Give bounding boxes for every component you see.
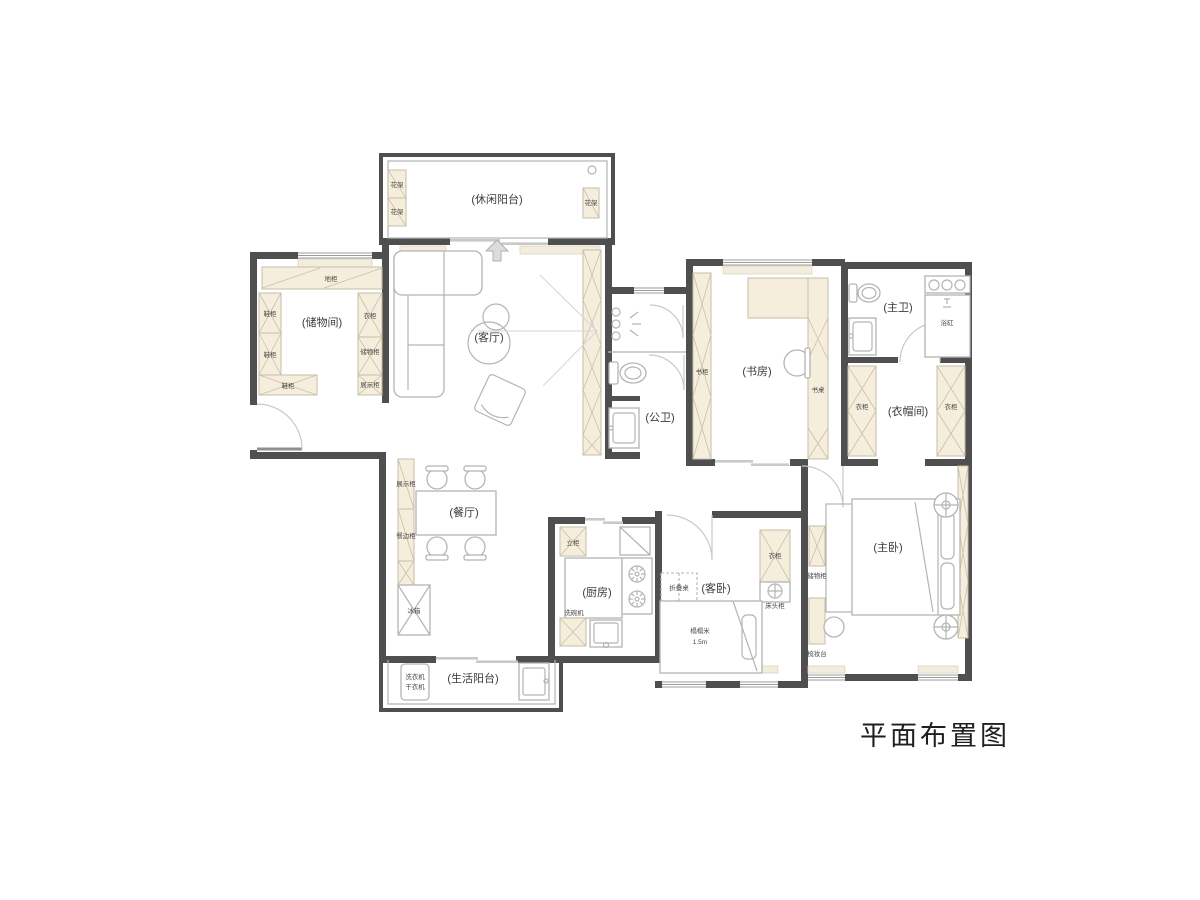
nightstand-label: 床头柜: [765, 601, 785, 610]
room-guest-bedroom: 折叠桌 衣柜 床头柜 榻榻米 1.5m (客卧): [660, 530, 790, 673]
tatami-label: 榻榻米: [690, 626, 710, 635]
room-label-storage: (储物间): [302, 315, 342, 329]
dresser-label: 梳妆台: [807, 649, 827, 658]
room-label-study: (书房): [742, 365, 771, 378]
bedside-lamp-icon: [934, 615, 958, 639]
floor-plan: 花架 花架 花架 (休闲阳台) 地柜 鞋柜 鞋柜 鞋柜 衣柜 储物柜 展示柜 (…: [0, 0, 1200, 900]
desk-label: 书桌: [812, 385, 826, 394]
display-cabinet-label: 展示柜: [396, 479, 416, 488]
room-service-balcony: 洗衣机 干衣机 (生活阳台): [401, 663, 549, 700]
room-public-bathroom: (公卫): [608, 308, 686, 448]
bookshelf-label: 书柜: [696, 367, 710, 376]
shoe-cabinet-label: 鞋柜: [264, 309, 278, 318]
room-storage: 地柜 鞋柜 鞋柜 鞋柜 衣柜 储物柜 展示柜 (储物间): [259, 267, 382, 395]
folding-table-label: 折叠桌: [669, 583, 689, 592]
flower-rack-label: 花架: [391, 180, 405, 189]
washer-label: 洗衣机: [405, 672, 425, 681]
room-master-bedroom: 储物柜 梳妆台 (主卧): [807, 466, 968, 658]
flower-rack-label: 花架: [391, 207, 405, 216]
plan-title: 平面布置图: [860, 721, 1010, 751]
room-kitchen: 立柜 洗碗机 (厨房): [560, 527, 652, 648]
dishwasher-label: 洗碗机: [564, 608, 584, 617]
room-dining: 展示柜 餐边柜 冰箱 (餐厅): [396, 459, 496, 635]
room-living: (客厅): [394, 250, 601, 455]
fridge-label: 冰箱: [408, 606, 422, 615]
storage-cabinet-label: 储物柜: [807, 571, 827, 580]
sideboard-label: 餐边柜: [396, 531, 416, 540]
wardrobe-label: 衣柜: [364, 311, 378, 320]
display-cabinet-label: 展示柜: [360, 380, 380, 389]
wardrobe-label: 衣柜: [856, 402, 870, 411]
room-study: 书柜 书桌 (书房): [693, 273, 828, 459]
shoe-cabinet-label: 鞋柜: [264, 350, 278, 359]
room-label-kitchen: (厨房): [582, 586, 611, 599]
room-label-living: (客厅): [474, 330, 503, 344]
tatami-size-label: 1.5m: [693, 639, 707, 646]
room-label-master-bedroom: (主卧): [873, 541, 902, 554]
flower-rack-label: 花架: [585, 198, 599, 207]
room-label-guest-bedroom: (客卧): [701, 581, 730, 595]
shoe-cabinet-label: 鞋柜: [282, 381, 296, 390]
room-cloakroom: 衣柜 衣柜 (衣帽间): [848, 366, 965, 456]
base-cabinet-label: 地柜: [325, 274, 339, 283]
room-master-bathroom: 浴缸 (主卫): [849, 276, 970, 357]
storage-cabinet-label: 储物柜: [360, 347, 380, 356]
bathtub-label: 浴缸: [941, 318, 955, 327]
wardrobe-label: 衣柜: [769, 551, 783, 560]
room-label-leisure-balcony: (休闲阳台): [471, 192, 522, 206]
room-label-master-bathroom: (主卫): [883, 301, 912, 314]
wardrobe-label: 衣柜: [945, 402, 959, 411]
bedside-lamp-icon: [934, 493, 958, 517]
room-label-cloakroom: (衣帽间): [888, 404, 928, 418]
room-label-public-bathroom: (公卫): [645, 412, 674, 424]
room-label-service-balcony: (生活阳台): [447, 671, 498, 685]
dryer-label: 干衣机: [405, 682, 425, 691]
tall-cabinet-label: 立柜: [567, 538, 581, 547]
room-label-dining: (餐厅): [449, 505, 478, 519]
